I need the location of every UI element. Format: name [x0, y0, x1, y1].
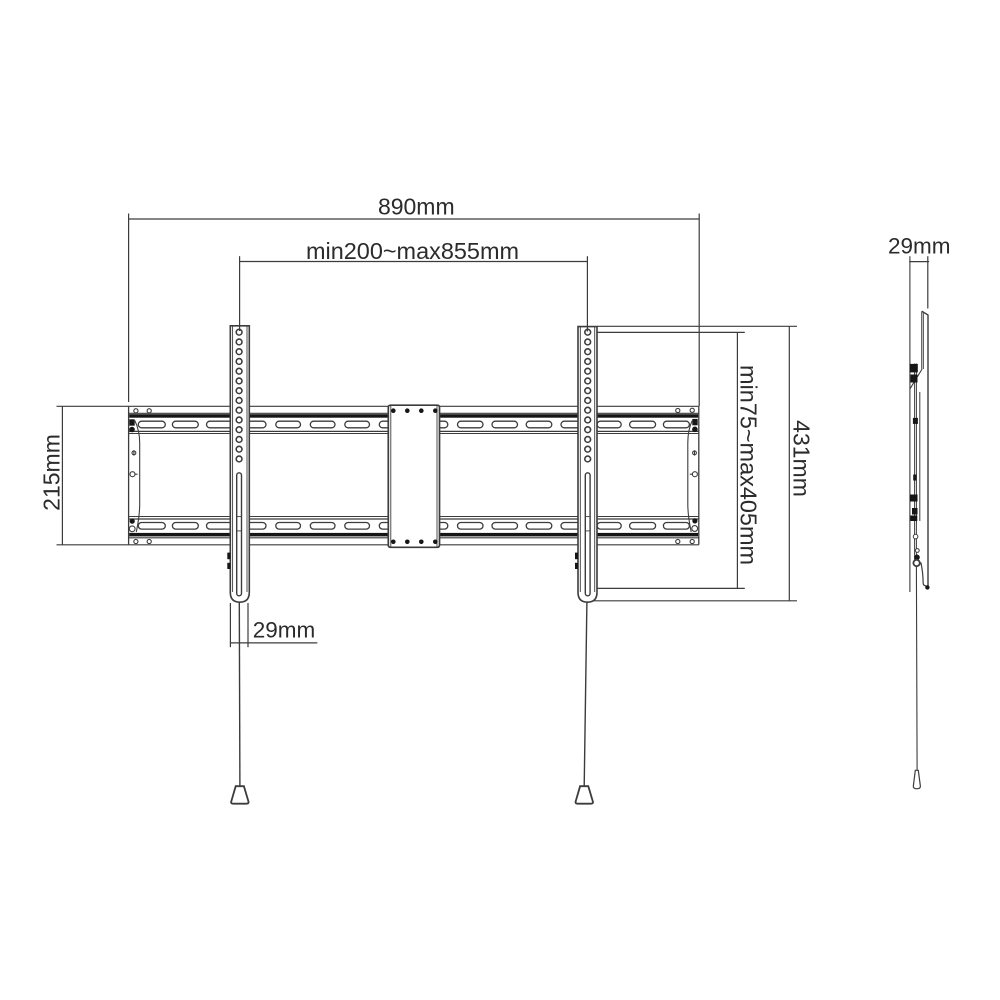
svg-text:29mm: 29mm — [888, 234, 951, 259]
svg-text:215mm: 215mm — [39, 434, 65, 511]
svg-text:890mm: 890mm — [378, 194, 455, 220]
svg-text:min75~max405mm: min75~max405mm — [736, 365, 762, 565]
svg-text:431mm: 431mm — [789, 420, 815, 497]
svg-text:29mm: 29mm — [253, 618, 316, 643]
svg-text:min200~max855mm: min200~max855mm — [306, 238, 519, 264]
